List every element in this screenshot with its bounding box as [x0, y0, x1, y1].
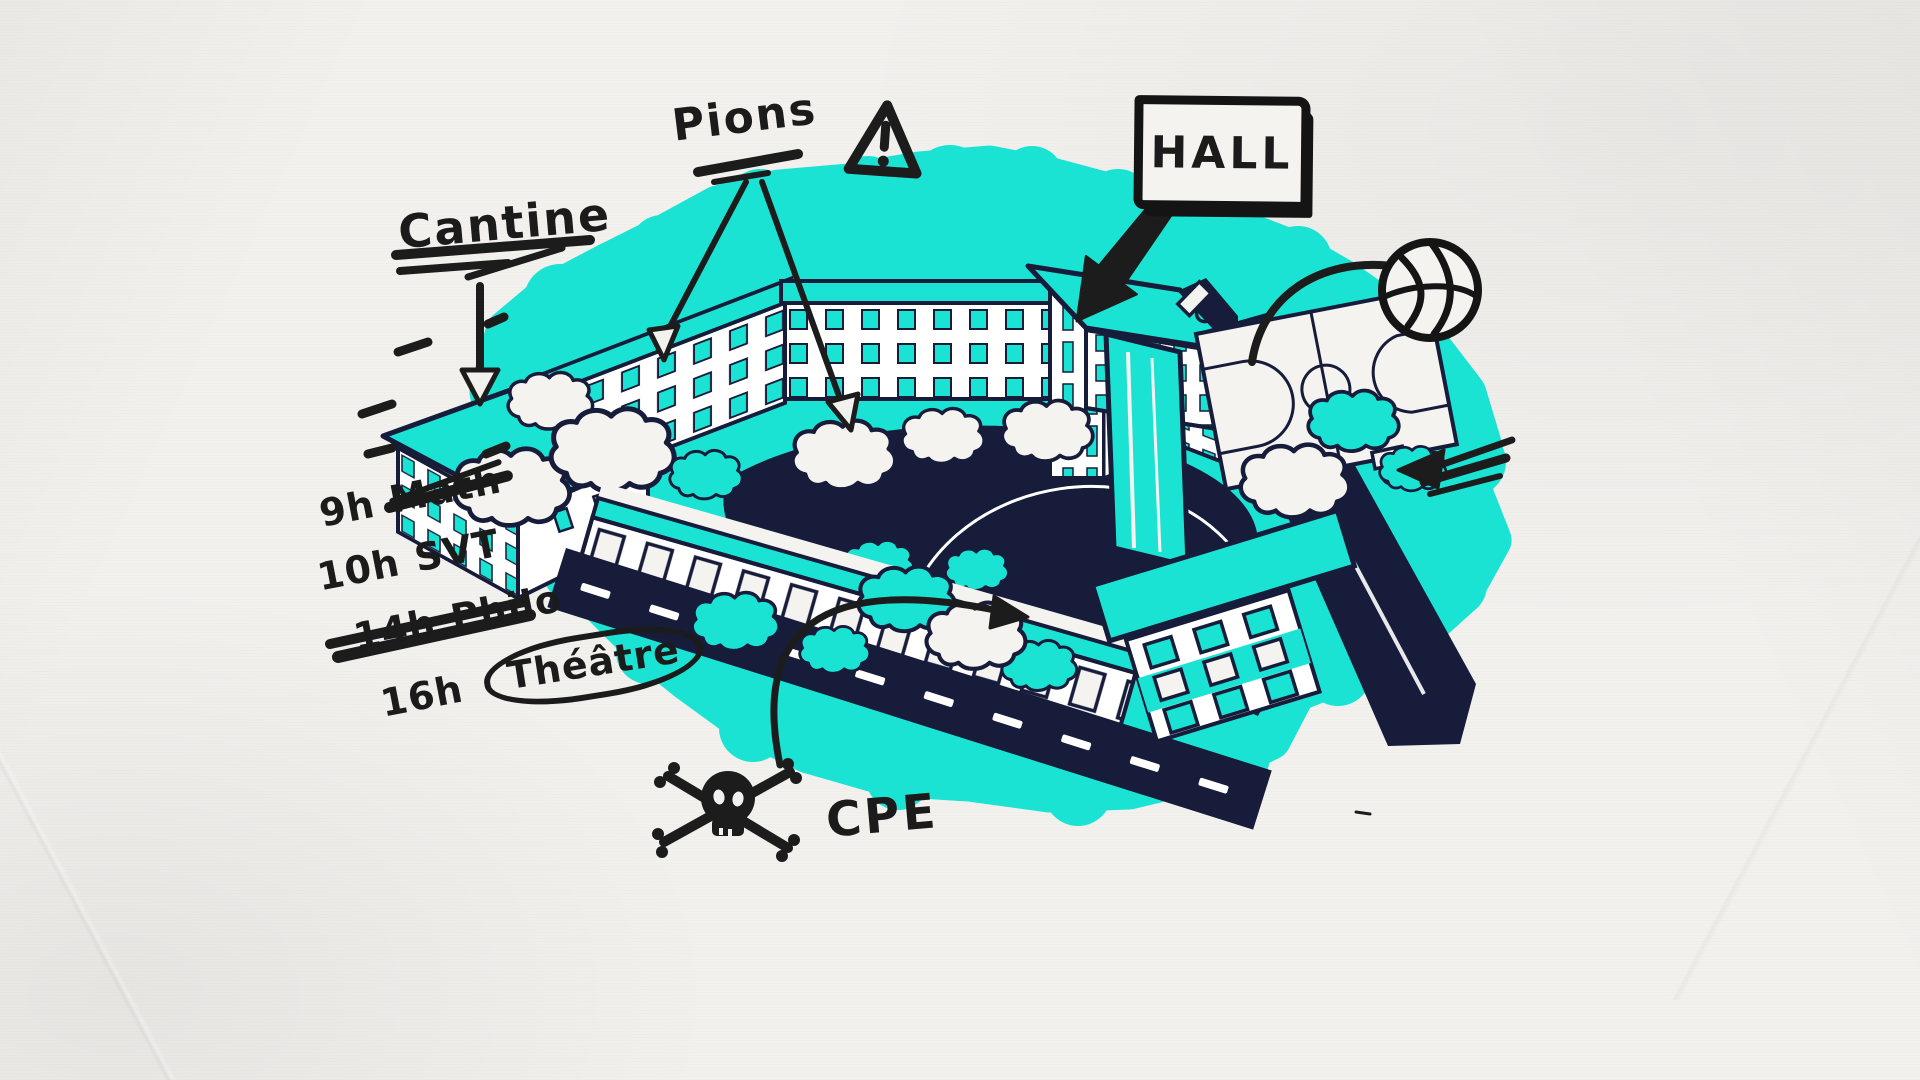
campus-map: Cantine Pions HALL 9hMath 10hSVT 14hPhil… [0, 0, 1920, 1080]
hall-tower [1106, 334, 1188, 566]
paper-mark [1356, 812, 1370, 814]
schedule-time: 9h [316, 482, 379, 536]
schedule-time: 14h [350, 600, 440, 659]
campus-illustration [0, 0, 1920, 1080]
main-building-middle-wing [781, 281, 1069, 399]
hall-label: HALL [1150, 127, 1293, 179]
schedule-subject: Philo [447, 576, 565, 641]
schedule-line-10h: 10hSVT [314, 521, 504, 599]
skull-crossbones-icon [652, 758, 802, 862]
schedule-time: 16h [377, 667, 467, 726]
cpe-label: CPE [824, 783, 941, 849]
schedule-subject: SVT [411, 521, 504, 581]
schedule-time: 10h [314, 540, 404, 599]
hall-label-box: HALL [1133, 95, 1310, 211]
